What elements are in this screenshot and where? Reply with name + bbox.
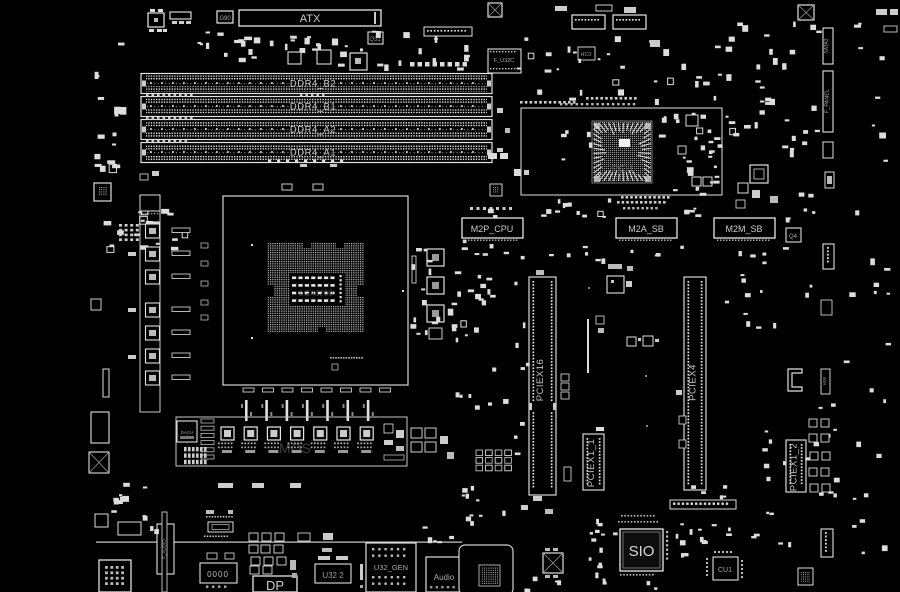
svg-text:SIO: SIO — [629, 543, 655, 560]
svg-text:DDR4_A2: DDR4_A2 — [290, 125, 336, 136]
svg-text:DP: DP — [266, 578, 284, 592]
svg-text:0000: 0000 — [207, 570, 229, 579]
svg-text:F_PANEL: F_PANEL — [825, 89, 831, 113]
svg-text:DDR4_A1: DDR4_A1 — [290, 148, 336, 159]
svg-text:M2P_CPU: M2P_CPU — [471, 224, 514, 234]
svg-text:K09: K09 — [822, 377, 827, 386]
svg-text:F_AUDIO: F_AUDIO — [162, 539, 167, 559]
svg-text:CU1: CU1 — [718, 567, 732, 574]
svg-text:M2A_SB: M2A_SB — [628, 224, 664, 234]
svg-text:DACH: DACH — [181, 430, 194, 435]
svg-text:G90: G90 — [219, 16, 231, 22]
svg-text:PCIEX1_2: PCIEX1_2 — [789, 443, 800, 491]
svg-text:Q4: Q4 — [789, 234, 798, 240]
svg-text:U32_GEN: U32_GEN — [374, 563, 408, 572]
svg-text:DDR4_B2: DDR4_B2 — [290, 79, 336, 90]
svg-text:HC0: HC0 — [580, 52, 591, 58]
svg-text:ATX: ATX — [300, 13, 321, 25]
svg-text:F_U32C: F_U32C — [494, 58, 515, 64]
svg-text:Audio: Audio — [434, 573, 455, 582]
svg-text:SATA3: SATA3 — [824, 38, 830, 53]
svg-text:PCIEX1_1: PCIEX1_1 — [586, 439, 597, 487]
svg-text:PCIEX16: PCIEX16 — [535, 359, 546, 402]
svg-text:PCIEX4: PCIEX4 — [688, 364, 699, 401]
svg-text:DDR4_B1: DDR4_B1 — [290, 102, 336, 113]
svg-text:LGA1200: LGA1200 — [299, 289, 333, 298]
svg-text:M2M_SB: M2M_SB — [725, 224, 762, 234]
svg-text:PCH: PCH — [611, 164, 632, 175]
svg-text:U32 2: U32 2 — [322, 571, 344, 580]
